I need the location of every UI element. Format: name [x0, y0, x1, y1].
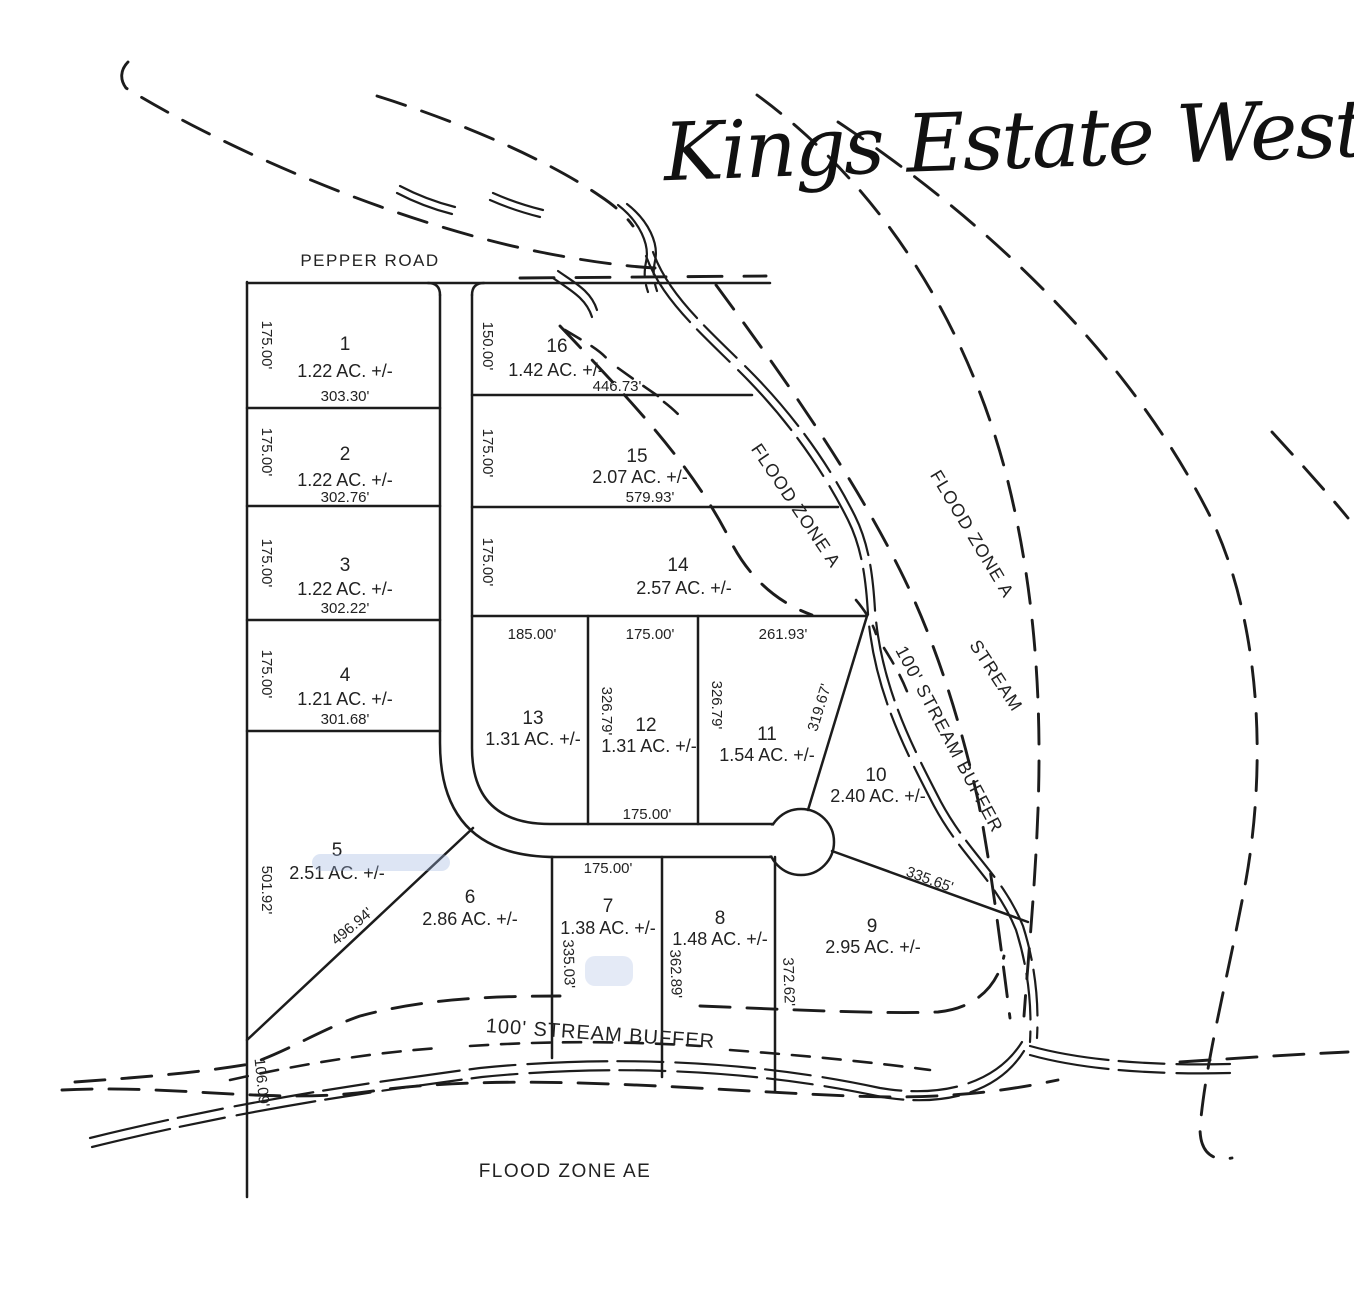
lot-6-area: 2.86 AC. +/-: [422, 909, 518, 929]
lot-11-area: 1.54 AC. +/-: [719, 745, 815, 765]
lot-8-number: 8: [715, 908, 726, 929]
lot-8-east-dim: 372.62': [779, 957, 798, 1006]
lot-15-side-dim: 175.00': [479, 429, 496, 478]
lot-11-west-dim: 326.79': [708, 681, 725, 730]
lot-5-south-dim: 106.09': [250, 1057, 272, 1107]
faded-watermark-smudge: [312, 854, 450, 871]
lot-6-number: 6: [465, 887, 476, 908]
lot-13-number: 13: [522, 708, 543, 729]
pepper-road-label: PEPPER ROAD: [300, 251, 439, 270]
lot-11-top-dim: 261.93': [759, 626, 808, 643]
lot-13-top-dim: 185.00': [508, 626, 557, 643]
lot-15-area: 2.07 AC. +/-: [592, 467, 688, 487]
lot-7-top-dim: 175.00': [584, 860, 633, 877]
lot-9-top-dim: 335.65': [904, 863, 956, 896]
lot-4-area: 1.21 AC. +/-: [297, 689, 393, 709]
flood-zone-ae-label: FLOOD ZONE AE: [479, 1161, 652, 1182]
plat-drawing: Kings Estate West PEPPER ROAD 1 1.22 AC.…: [0, 0, 1354, 1294]
flood-zone-a-upper-label: FLOOD ZONE A: [747, 440, 845, 571]
lot-4-width-dim: 301.68': [321, 711, 370, 728]
lot-16-side-dim: 150.00': [479, 322, 496, 371]
lot-12-number: 12: [635, 715, 656, 736]
lot-13-area: 1.31 AC. +/-: [485, 729, 581, 749]
lot-3-number: 3: [340, 555, 351, 576]
lot-11-number: 11: [757, 724, 777, 745]
lot-4-number: 4: [340, 665, 351, 686]
lot-1-side-dim: 175.00': [258, 321, 275, 370]
lot-8-area: 1.48 AC. +/-: [672, 929, 768, 949]
flood-zone-boundary-lines: [62, 62, 1348, 1159]
lot-16-number: 16: [546, 336, 567, 357]
lot-12-bottom-dim: 175.00': [623, 806, 672, 823]
lot-5-side-dim: 501.92': [258, 866, 275, 915]
lot-7-east-dim: 362.89': [666, 949, 685, 998]
lot-3-area: 1.22 AC. +/-: [297, 579, 393, 599]
lot-7-side-dim: 335.03': [559, 939, 578, 988]
lot-12-top-dim: 175.00': [626, 626, 675, 643]
lot-9-area: 2.95 AC. +/-: [825, 937, 921, 957]
lot-16-width-dim: 446.73': [593, 378, 642, 395]
lot-1-number: 1: [340, 334, 351, 355]
lot-15-width-dim: 579.93': [626, 489, 675, 506]
lot-2-number: 2: [340, 444, 351, 465]
lot-16-area: 1.42 AC. +/-: [508, 360, 604, 380]
faded-watermark-smudge: [585, 956, 633, 986]
lot-2-width-dim: 302.76': [321, 489, 370, 506]
lot-1-area: 1.22 AC. +/-: [297, 361, 393, 381]
lot-10-number: 10: [865, 765, 886, 786]
lot-12-area: 1.31 AC. +/-: [601, 736, 697, 756]
lot-4-side-dim: 175.00': [258, 650, 275, 699]
flood-zone-a-outer-label: FLOOD ZONE A: [926, 467, 1018, 602]
lot-10-west-dim: 319.67': [804, 682, 835, 734]
lot-7-area: 1.38 AC. +/-: [560, 918, 656, 938]
lot-14-area: 2.57 AC. +/-: [636, 578, 732, 598]
lot-12-west-dim: 326.79': [598, 687, 615, 736]
lot-14-side-dim: 175.00': [479, 538, 496, 587]
lot-3-side-dim: 175.00': [258, 539, 275, 588]
lot-10-area: 2.40 AC. +/-: [830, 786, 926, 806]
lot-14-number: 14: [667, 555, 689, 576]
stream-buffer-bottom-label: 100' STREAM BUFFER: [485, 1015, 716, 1053]
labels: Kings Estate West PEPPER ROAD 1 1.22 AC.…: [250, 82, 1354, 1182]
lot-9-number: 9: [867, 916, 878, 937]
lot-15-number: 15: [626, 446, 647, 467]
stream-label: STREAM: [966, 636, 1027, 715]
lot-2-area: 1.22 AC. +/-: [297, 470, 393, 490]
plat-map: Kings Estate West PEPPER ROAD 1 1.22 AC.…: [0, 0, 1354, 1294]
lot-2-side-dim: 175.00': [258, 428, 275, 477]
lot-7-number: 7: [603, 896, 614, 917]
lot-1-width-dim: 303.30': [321, 388, 370, 405]
lot-3-width-dim: 302.22': [321, 600, 370, 617]
